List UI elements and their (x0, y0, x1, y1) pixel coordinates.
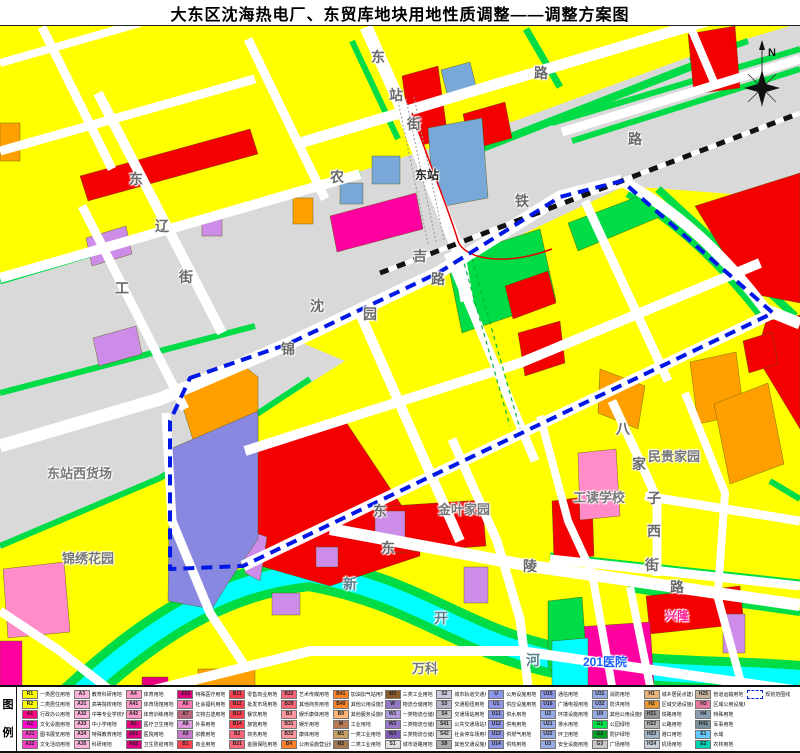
legend-swatch: A2 (22, 720, 38, 729)
legend-label: 铁路用地 (662, 711, 682, 718)
legend-item: A3教育科研用地 (74, 690, 124, 699)
legend-item: W物流仓储用地 (385, 700, 435, 709)
legend-label: 排水用地 (558, 721, 578, 728)
legend-label: 体育场馆用地 (144, 701, 174, 708)
legend-label: 零售商业用地 (247, 691, 277, 698)
legend-label: 其他公用设施营业网点用地 (351, 701, 383, 708)
legend-swatch: H4 (695, 710, 711, 719)
legend-swatch: A21 (22, 730, 38, 739)
legend-label: 旅馆用地 (247, 721, 267, 728)
legend-label: 广播电视用地 (558, 701, 588, 708)
legend-swatch: S42 (436, 730, 452, 739)
legend-item: U1供应设施用地 (488, 700, 538, 709)
legend-label: 环卫用地 (558, 731, 578, 738)
legend-label: 交通场站用地 (454, 711, 484, 718)
legend-item: H3区域公用设施用地 (695, 700, 745, 709)
legend-label: 金融保险用地 (247, 741, 277, 748)
legend-item: B21金融保险用地 (229, 740, 279, 749)
legend-item: U31消防用地 (592, 690, 642, 699)
legend-item: U32防洪用地 (592, 700, 642, 709)
legend-swatch: S9 (436, 740, 452, 749)
legend-label: 一类物流仓储用地 (403, 711, 435, 718)
legend-label: 通信用地 (558, 691, 578, 698)
legend-label: 高等院校用地 (92, 701, 122, 708)
legend-item: A31高等院校用地 (74, 700, 124, 709)
legend-swatch (747, 690, 763, 699)
legend-item: A1行政办公用地 (22, 710, 72, 719)
legend-label: 社会停车场用地 (454, 731, 486, 738)
legend-label: 公用设施用地 (506, 691, 536, 698)
legend-item: G2防护绿地 (592, 730, 642, 739)
legend-swatch: U32 (592, 700, 608, 709)
legend-item: M工业用地 (333, 720, 383, 729)
legend-label: 公用设施营业网点用地 (299, 741, 331, 748)
legend-item: B13餐饮用地 (229, 710, 279, 719)
legend-swatch: B14 (229, 720, 245, 729)
legend-heading-char: 图 (3, 699, 14, 711)
legend-swatch: H3 (695, 700, 711, 709)
legend-item: B31娱乐用地 (281, 720, 331, 729)
legend-item: B4公用设施营业网点用地 (281, 740, 331, 749)
legend-item: A35科研用地 (74, 740, 124, 749)
legend-label: 供水用地 (506, 711, 526, 718)
legend-swatch: U14 (488, 740, 504, 749)
legend-item: A52卫生防疫用地 (126, 740, 176, 749)
legend-label: 医院用地 (144, 731, 164, 738)
legend-label: 三类物流仓储用地 (403, 731, 435, 738)
legend-label: 供电用地 (506, 721, 526, 728)
legend-swatch: R1 (22, 690, 38, 699)
legend-swatch: B29 (281, 700, 297, 709)
legend-item: U12供电用地 (488, 720, 538, 729)
legend-label: 规划范围线 (765, 691, 790, 698)
legend-item: A6社会福利用地 (177, 700, 227, 709)
legend-label: 二类物流仓储用地 (403, 721, 435, 728)
legend-item: A2文化设施用地 (22, 720, 72, 729)
legend-heading: 图 例 (0, 687, 17, 751)
legend-item: B2商务用地 (229, 730, 279, 739)
legend-item: A53特殊医疗用地 (177, 690, 227, 699)
legend-label: 防洪用地 (610, 701, 630, 708)
legend-item: G3广场用地 (592, 740, 642, 749)
legend-item: H23港口用地 (644, 730, 694, 739)
legend-label: 公路用地 (662, 721, 682, 728)
legend-swatch: A51 (126, 730, 142, 739)
legend-swatch: A6 (177, 700, 193, 709)
legend-item: W1一类物流仓储用地 (385, 710, 435, 719)
legend-item: W2二类物流仓储用地 (385, 720, 435, 729)
legend-swatch: A5 (126, 720, 142, 729)
legend-swatch: U1 (488, 700, 504, 709)
legend-item: B22艺术传媒用地 (281, 690, 331, 699)
legend-item: H2区域交通设施用地 (644, 700, 694, 709)
legend-swatch: W (385, 700, 401, 709)
legend-item: B11零售商业用地 (229, 690, 279, 699)
legend-item: M3三类工业用地 (385, 690, 435, 699)
legend-item: A51医院用地 (126, 730, 176, 739)
legend-swatch: E1 (695, 730, 711, 739)
legend-swatch: H22 (644, 720, 660, 729)
legend-label: 餐饮用地 (247, 711, 267, 718)
legend-swatch: A1 (22, 710, 38, 719)
legend-swatch: M (333, 720, 349, 729)
legend-label: 军事用地 (713, 721, 733, 728)
legend-item: B1商业用地 (177, 740, 227, 749)
legend-swatch: B9 (333, 710, 349, 719)
legend-item: E1水域 (695, 730, 745, 739)
legend-label: 二类居住用地 (40, 701, 70, 708)
legend-item: M2二类工业用地 (333, 740, 383, 749)
legend-item: H24机场用地 (644, 740, 694, 749)
legend-label: 文物古迹用地 (195, 711, 225, 718)
legend-swatch: S4 (436, 710, 452, 719)
legend-swatch: H24 (644, 740, 660, 749)
map-canvas[interactable]: N 东站街路农东辽街工沈吉铁路锦园路东站八家子西街东东陵路新开河东站西货场锦绣花… (0, 25, 800, 685)
legend-swatch: A34 (74, 730, 90, 739)
legend-label: 批发市场用地 (247, 701, 277, 708)
legend-swatch: U (488, 690, 504, 699)
legend-item: U21排水用地 (540, 720, 590, 729)
legend-swatch: H1 (644, 690, 660, 699)
legend-swatch: B2 (229, 730, 245, 739)
legend-item: B9其他服务设施用地 (333, 710, 383, 719)
legend-item: B14旅馆用地 (229, 720, 279, 729)
legend-swatch: B12 (229, 700, 245, 709)
legend-label: 体育训练用地 (144, 711, 174, 718)
legend-label: 城市轨道交通用地 (454, 691, 486, 698)
title-bar: 大东区沈海热电厂、东贸库地块用地性质调整——调整方案图 (0, 0, 800, 25)
legend-swatch: H23 (644, 730, 660, 739)
legend-label: 加油加气站用地 (351, 691, 383, 698)
legend-label: 水域 (713, 731, 723, 738)
legend-label: 公共交通场站用地 (454, 721, 486, 728)
legend-swatch: U31 (592, 690, 608, 699)
legend-item: R1一类居住用地 (22, 690, 72, 699)
legend-item: U11供水用地 (488, 710, 538, 719)
legend-label: 三类工业用地 (403, 691, 433, 698)
legend-swatch: M3 (385, 690, 401, 699)
legend-swatch: A42 (126, 710, 142, 719)
legend-swatch: R2 (22, 700, 38, 709)
legend-label: 商业用地 (195, 741, 215, 748)
legend-label: 环境设施用地 (558, 711, 588, 718)
legend-label: 娱乐康体用地 (299, 711, 329, 718)
legend-label: 科研用地 (92, 741, 112, 748)
legend-label: 体育用地 (144, 691, 164, 698)
legend-swatch: U15 (540, 690, 556, 699)
plan-sheet: 大东区沈海热电厂、东贸库地块用地性质调整——调整方案图 (0, 0, 800, 753)
legend-swatch: U2 (540, 710, 556, 719)
legend-swatch: H41 (695, 720, 711, 729)
legend-label: 康体用地 (299, 731, 319, 738)
legend-swatch: B4 (281, 740, 297, 749)
legend-swatch: U3 (540, 740, 556, 749)
legend-swatch: H21 (644, 710, 660, 719)
legend-swatch: G2 (592, 730, 608, 739)
legend-label: 娱乐用地 (299, 721, 319, 728)
legend-swatch: S41 (436, 720, 452, 729)
legend-grid: R1一类居住用地R2二类居住用地A1行政办公用地A2文化设施用地A21图书展览用… (17, 687, 800, 751)
map-svg: N (0, 26, 800, 685)
legend-label: 其他商务用地 (299, 701, 329, 708)
legend-swatch: H2 (644, 700, 660, 709)
legend-label: 消防用地 (610, 691, 630, 698)
legend-item: B32康体用地 (281, 730, 331, 739)
legend-label: 特殊用地 (713, 711, 733, 718)
legend-label: 外事用地 (195, 721, 215, 728)
legend-label: 中小学用地 (92, 721, 117, 728)
legend-swatch: A31 (74, 700, 90, 709)
legend-swatch: U16 (540, 700, 556, 709)
legend-label: 供热用地 (506, 741, 526, 748)
legend-swatch: G3 (592, 740, 608, 749)
legend-swatch: B21 (229, 740, 245, 749)
legend-item: 规划范围线 (747, 690, 797, 699)
legend-label: 卫生防疫用地 (144, 741, 174, 748)
legend-swatch: W1 (385, 710, 401, 719)
legend-swatch: S1 (385, 740, 401, 749)
legend-label: 二类工业用地 (351, 741, 381, 748)
legend-label: 一类工业用地 (351, 731, 381, 738)
legend-label: 区域交通设施用地 (662, 701, 694, 708)
legend-item: A22文化活动用地 (22, 740, 72, 749)
legend-label: 区域公用设施用地 (713, 701, 745, 708)
legend-item: W3三类物流仓储用地 (385, 730, 435, 739)
legend-item: A9宗教用地 (177, 730, 227, 739)
legend-swatch: U11 (488, 710, 504, 719)
legend-label: 交通枢纽用地 (454, 701, 484, 708)
legend-item: U3安全设施用地 (540, 740, 590, 749)
legend-item: S4交通场站用地 (436, 710, 486, 719)
legend-swatch: A32 (74, 710, 90, 719)
legend-label: 其他交通设施用地 (454, 741, 486, 748)
legend-item: U16广播电视用地 (540, 700, 590, 709)
legend-item: B3娱乐康体用地 (281, 710, 331, 719)
legend-label: 港口用地 (662, 731, 682, 738)
legend-swatch: B22 (281, 690, 297, 699)
legend-item: H41军事用地 (695, 720, 745, 729)
legend-label: 城乡居民点建设用地 (662, 691, 694, 698)
legend-item: A41体育场馆用地 (126, 700, 176, 709)
legend-item: H4特殊用地 (695, 710, 745, 719)
legend-swatch: B41 (333, 690, 349, 699)
legend-item: A7文物古迹用地 (177, 710, 227, 719)
legend-item: B49其他公用设施营业网点用地 (333, 700, 383, 709)
legend-item: U公用设施用地 (488, 690, 538, 699)
legend-swatch: A3 (74, 690, 90, 699)
legend-item: B12批发市场用地 (229, 700, 279, 709)
legend-item: A21图书展览用地 (22, 730, 72, 739)
legend-swatch: A7 (177, 710, 193, 719)
legend-swatch: U13 (488, 730, 504, 739)
legend-label: 行政办公用地 (40, 711, 70, 718)
legend-swatch: A41 (126, 700, 142, 709)
legend-label: 社会福利用地 (195, 701, 225, 708)
legend-swatch: S3 (436, 700, 452, 709)
legend-item: S41公共交通场站用地 (436, 720, 486, 729)
legend-swatch: A53 (177, 690, 193, 699)
legend-item: U15通信用地 (540, 690, 590, 699)
legend-swatch: S2 (436, 690, 452, 699)
legend-label: 机场用地 (662, 741, 682, 748)
legend-swatch: W3 (385, 730, 401, 739)
legend-label: 防护绿地 (610, 731, 630, 738)
legend-swatch: U22 (540, 730, 556, 739)
legend-item: H21铁路用地 (644, 710, 694, 719)
legend-swatch: A22 (22, 740, 38, 749)
legend-swatch: A8 (177, 720, 193, 729)
legend-label: 特殊医疗用地 (195, 691, 225, 698)
legend-label: 供应设施用地 (506, 701, 536, 708)
legend-swatch: G1 (592, 720, 608, 729)
legend-swatch: B13 (229, 710, 245, 719)
legend-swatch: A4 (126, 690, 142, 699)
legend-label: 安全设施用地 (558, 741, 588, 748)
legend-label: 其他公用设施用地 (610, 711, 642, 718)
legend-item: H22公路用地 (644, 720, 694, 729)
legend-swatch: B11 (229, 690, 245, 699)
legend-swatch: A9 (177, 730, 193, 739)
legend-item: B41加油加气站用地 (333, 690, 383, 699)
legend-swatch: B32 (281, 730, 297, 739)
legend-label: 公园绿地 (610, 721, 630, 728)
legend-swatch: M2 (333, 740, 349, 749)
legend-item: S2城市轨道交通用地 (436, 690, 486, 699)
legend-item: A4体育用地 (126, 690, 176, 699)
legend-item: G1公园绿地 (592, 720, 642, 729)
legend-swatch: M1 (333, 730, 349, 739)
legend-label: 艺术传媒用地 (299, 691, 329, 698)
legend-label: 特殊教育用地 (92, 731, 122, 738)
legend-swatch: B31 (281, 720, 297, 729)
legend-swatch: W2 (385, 720, 401, 729)
legend-label: 中等专业学校用地 (92, 711, 124, 718)
legend-item: S9其他交通设施用地 (436, 740, 486, 749)
legend-item: A33中小学用地 (74, 720, 124, 729)
legend-swatch: H25 (695, 690, 711, 699)
legend-item: S3交通枢纽用地 (436, 700, 486, 709)
legend-swatch: U12 (488, 720, 504, 729)
legend-label: 文化活动用地 (40, 741, 70, 748)
legend-item: A32中等专业学校用地 (74, 710, 124, 719)
legend-swatch: U9 (592, 710, 608, 719)
legend-label: 商务用地 (247, 731, 267, 738)
legend-label: 教育科研用地 (92, 691, 122, 698)
legend-item: H1城乡居民点建设用地 (644, 690, 694, 699)
legend-label: 其他服务设施用地 (351, 711, 383, 718)
legend-item: U13供燃气用地 (488, 730, 538, 739)
legend-swatch: A35 (74, 740, 90, 749)
legend-item: U22环卫用地 (540, 730, 590, 739)
legend-label: 宗教用地 (195, 731, 215, 738)
legend-label: 文化设施用地 (40, 721, 70, 728)
legend-swatch: B49 (333, 700, 349, 709)
legend-item: U14供热用地 (488, 740, 538, 749)
legend-item: B29其他商务用地 (281, 700, 331, 709)
legend-swatch: A33 (74, 720, 90, 729)
legend-label: 城市道路用地 (403, 741, 433, 748)
legend-item: S42社会停车场用地 (436, 730, 486, 739)
legend-label: 图书展览用地 (40, 731, 70, 738)
legend-item: A8外事用地 (177, 720, 227, 729)
legend-swatch: A52 (126, 740, 142, 749)
legend-bar: 图 例 R1一类居住用地R2二类居住用地A1行政办公用地A2文化设施用地A21图… (0, 685, 800, 753)
legend-label: 广场用地 (610, 741, 630, 748)
legend-item: H25管道运输用地 (695, 690, 745, 699)
legend-item: A42体育训练用地 (126, 710, 176, 719)
legend-label: 工业用地 (351, 721, 371, 728)
legend-label: 物流仓储用地 (403, 701, 433, 708)
legend-heading-char: 例 (3, 727, 14, 739)
compass-n-label: N (768, 47, 776, 59)
legend-item: U9其他公用设施用地 (592, 710, 642, 719)
legend-swatch: U21 (540, 720, 556, 729)
legend-item: M1一类工业用地 (333, 730, 383, 739)
legend-label: 农林用地 (713, 741, 733, 748)
legend-swatch: B1 (177, 740, 193, 749)
page-title: 大东区沈海热电厂、东贸库地块用地性质调整——调整方案图 (170, 1, 629, 25)
legend-item: A5医疗卫生用地 (126, 720, 176, 729)
legend-item: A34特殊教育用地 (74, 730, 124, 739)
legend-label: 管道运输用地 (713, 691, 743, 698)
legend-item: E2农林用地 (695, 740, 745, 749)
legend-item: R2二类居住用地 (22, 700, 72, 709)
legend-swatch: E2 (695, 740, 711, 749)
legend-label: 一类居住用地 (40, 691, 70, 698)
legend-item: U2环境设施用地 (540, 710, 590, 719)
legend-item: S1城市道路用地 (385, 740, 435, 749)
legend-label: 医疗卫生用地 (144, 721, 174, 728)
legend-label: 供燃气用地 (506, 731, 531, 738)
legend-swatch: B3 (281, 710, 297, 719)
